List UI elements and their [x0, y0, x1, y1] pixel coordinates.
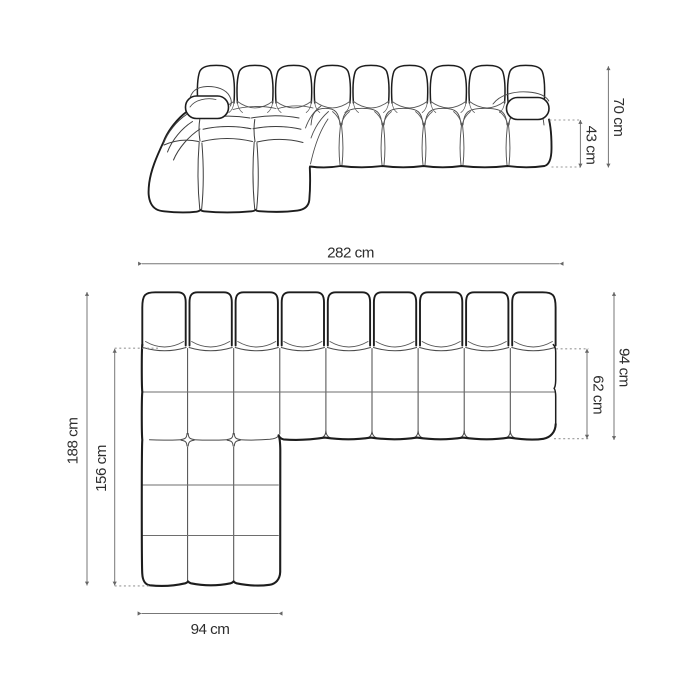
svg-text:43 cm: 43 cm — [583, 126, 600, 165]
svg-text:62 cm: 62 cm — [590, 375, 607, 414]
svg-text:156 cm: 156 cm — [93, 445, 110, 492]
svg-text:188 cm: 188 cm — [65, 418, 82, 465]
svg-text:282 cm: 282 cm — [327, 245, 374, 262]
svg-text:94 cm: 94 cm — [191, 621, 230, 638]
svg-text:94 cm: 94 cm — [616, 348, 633, 387]
svg-text:70 cm: 70 cm — [610, 98, 627, 137]
